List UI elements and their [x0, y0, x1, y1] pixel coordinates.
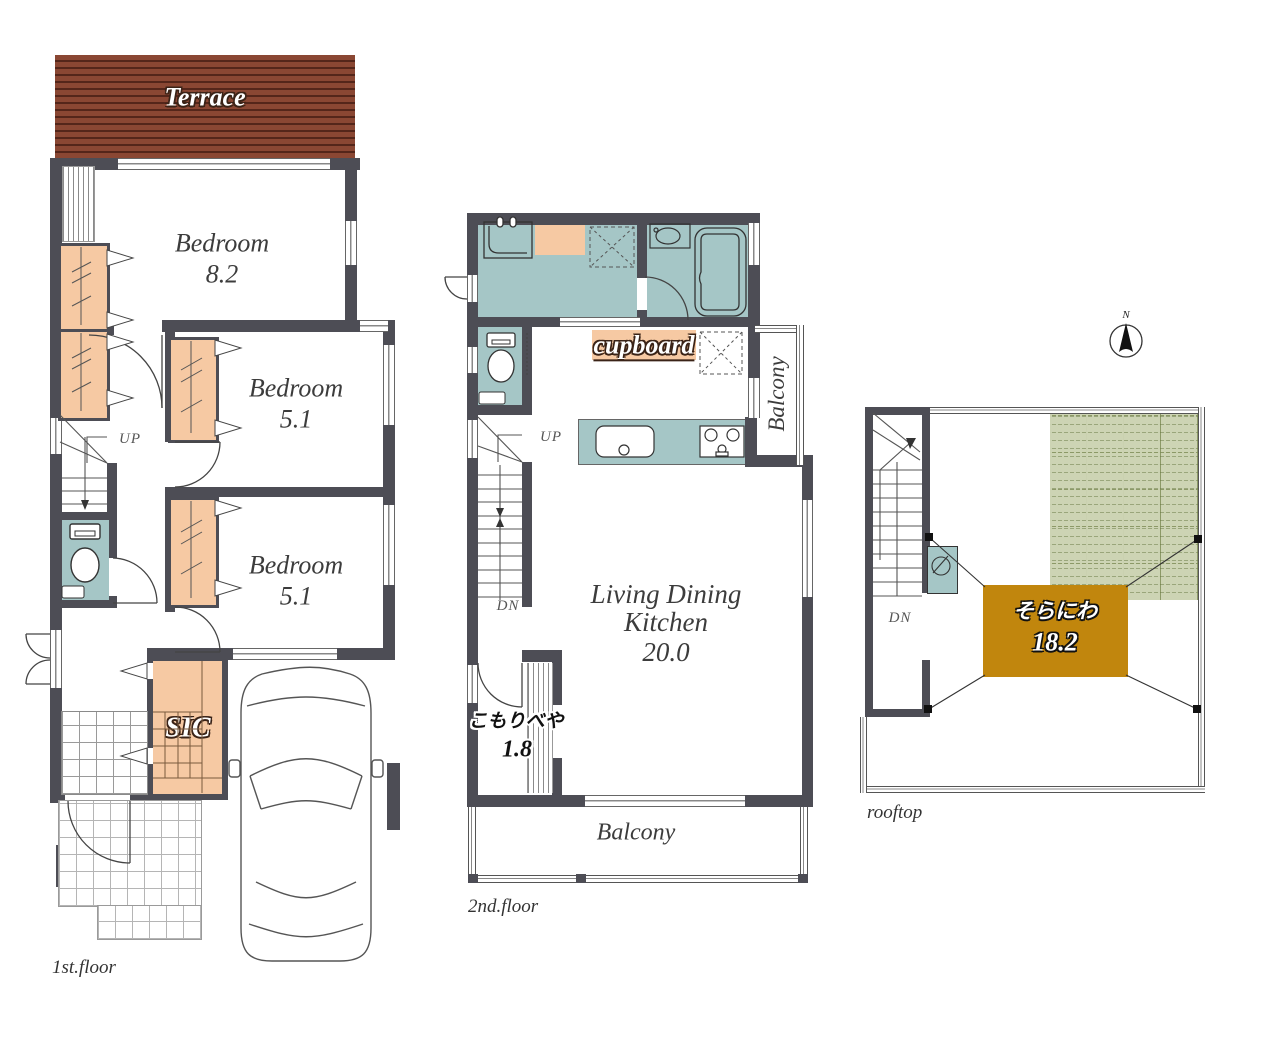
first-floor-caption: 1st.floor: [52, 958, 116, 978]
door-opening: [467, 275, 478, 302]
wall: [637, 310, 647, 317]
window: [802, 500, 813, 597]
roof-railing: [860, 786, 1205, 793]
kitchen-counter: [578, 419, 750, 465]
roof-railing: [1198, 407, 1205, 793]
toilet-room: [62, 520, 109, 600]
wall: [109, 596, 117, 608]
window: [50, 418, 62, 454]
louver-window: [62, 166, 95, 242]
soraniwa-label: そらにわ: [1013, 600, 1097, 622]
closet: [168, 337, 219, 443]
wall: [865, 709, 930, 717]
sliding-door: [585, 795, 745, 807]
floor-plan-canvas: Terrace: [0, 0, 1280, 1058]
wall: [467, 405, 532, 415]
porch-step-tile: [97, 905, 202, 940]
window: [748, 223, 760, 265]
bedroom3-label: Bedroom: [249, 551, 343, 578]
rooftop-caption: rooftop: [867, 803, 922, 823]
cupboard-label: cupboard: [593, 331, 694, 358]
balcony-railing: [796, 325, 804, 465]
wall: [522, 327, 532, 415]
wall: [165, 487, 395, 497]
window: [467, 665, 478, 703]
bathroom: [647, 225, 748, 317]
wall: [865, 407, 930, 415]
railing-post: [798, 874, 808, 883]
soraniwa-area: 18.2: [1032, 628, 1078, 655]
window: [748, 378, 760, 418]
carport-wall: [387, 763, 400, 830]
roof-railing: [930, 407, 1205, 414]
balcony-bottom-label: Balcony: [597, 820, 676, 845]
car-icon: [229, 667, 383, 961]
wall: [109, 512, 117, 558]
ldk-area: 20.0: [642, 638, 689, 666]
stairs-roof: [873, 413, 922, 596]
stairs-f2: [478, 417, 522, 600]
bedroom3-area: 5.1: [280, 582, 313, 609]
north-label: N: [1122, 310, 1129, 322]
closet: [168, 497, 219, 608]
wall: [222, 655, 228, 800]
laundry-counter: [535, 225, 585, 255]
wall: [522, 462, 532, 607]
roof-railing: [860, 717, 867, 793]
wall: [467, 213, 755, 225]
komoribeya-label: こもりべや: [468, 712, 563, 732]
komoribeya-area: 1.8: [502, 737, 532, 762]
up-label-f1: UP: [119, 432, 141, 448]
porch-tile: [58, 800, 202, 907]
ldk-label-line2: Kitchen: [624, 608, 708, 636]
wall: [637, 218, 647, 278]
terrace-label: Terrace: [164, 83, 245, 110]
window: [233, 648, 337, 660]
window: [383, 505, 395, 585]
wall: [748, 328, 760, 378]
closet: [58, 329, 110, 421]
wall: [552, 655, 562, 705]
railing-post: [576, 874, 586, 883]
window: [467, 420, 478, 458]
dn-label-f2: DN: [497, 599, 520, 615]
balcony-railing: [468, 807, 476, 883]
roof-sink: [927, 546, 958, 594]
dn-label-roof: DN: [889, 611, 912, 627]
wall: [865, 407, 873, 717]
window: [50, 630, 62, 688]
north-compass-icon: [1110, 323, 1142, 357]
stairs-f1: [60, 415, 107, 504]
sic-label: SIC: [165, 713, 210, 742]
roof-garden-turf: [1050, 414, 1198, 600]
entrance-tile: [61, 711, 148, 795]
balcony-railing: [468, 875, 808, 883]
bedroom2-area: 5.1: [280, 405, 313, 432]
second-floor-caption: 2nd.floor: [468, 897, 538, 917]
up-label-f2: UP: [540, 430, 562, 446]
window: [345, 221, 357, 265]
balcony-right-label: Balcony: [765, 356, 789, 431]
window: [383, 345, 395, 425]
sliding-door: [560, 317, 640, 327]
bedroom2-label: Bedroom: [249, 374, 343, 401]
railing-post: [468, 874, 478, 883]
window: [360, 320, 388, 332]
bedroom1-label: Bedroom: [175, 229, 269, 256]
wall: [107, 463, 117, 518]
window: [467, 347, 478, 373]
window: [118, 158, 330, 170]
bedroom1-area: 8.2: [206, 260, 239, 287]
stairs-arrow: [81, 500, 89, 510]
balcony-railing: [800, 807, 808, 883]
closet: [58, 243, 110, 335]
wall: [552, 758, 562, 795]
ldk-label-line1: Living Dining: [591, 580, 742, 608]
toilet-room-2f: [478, 327, 522, 405]
